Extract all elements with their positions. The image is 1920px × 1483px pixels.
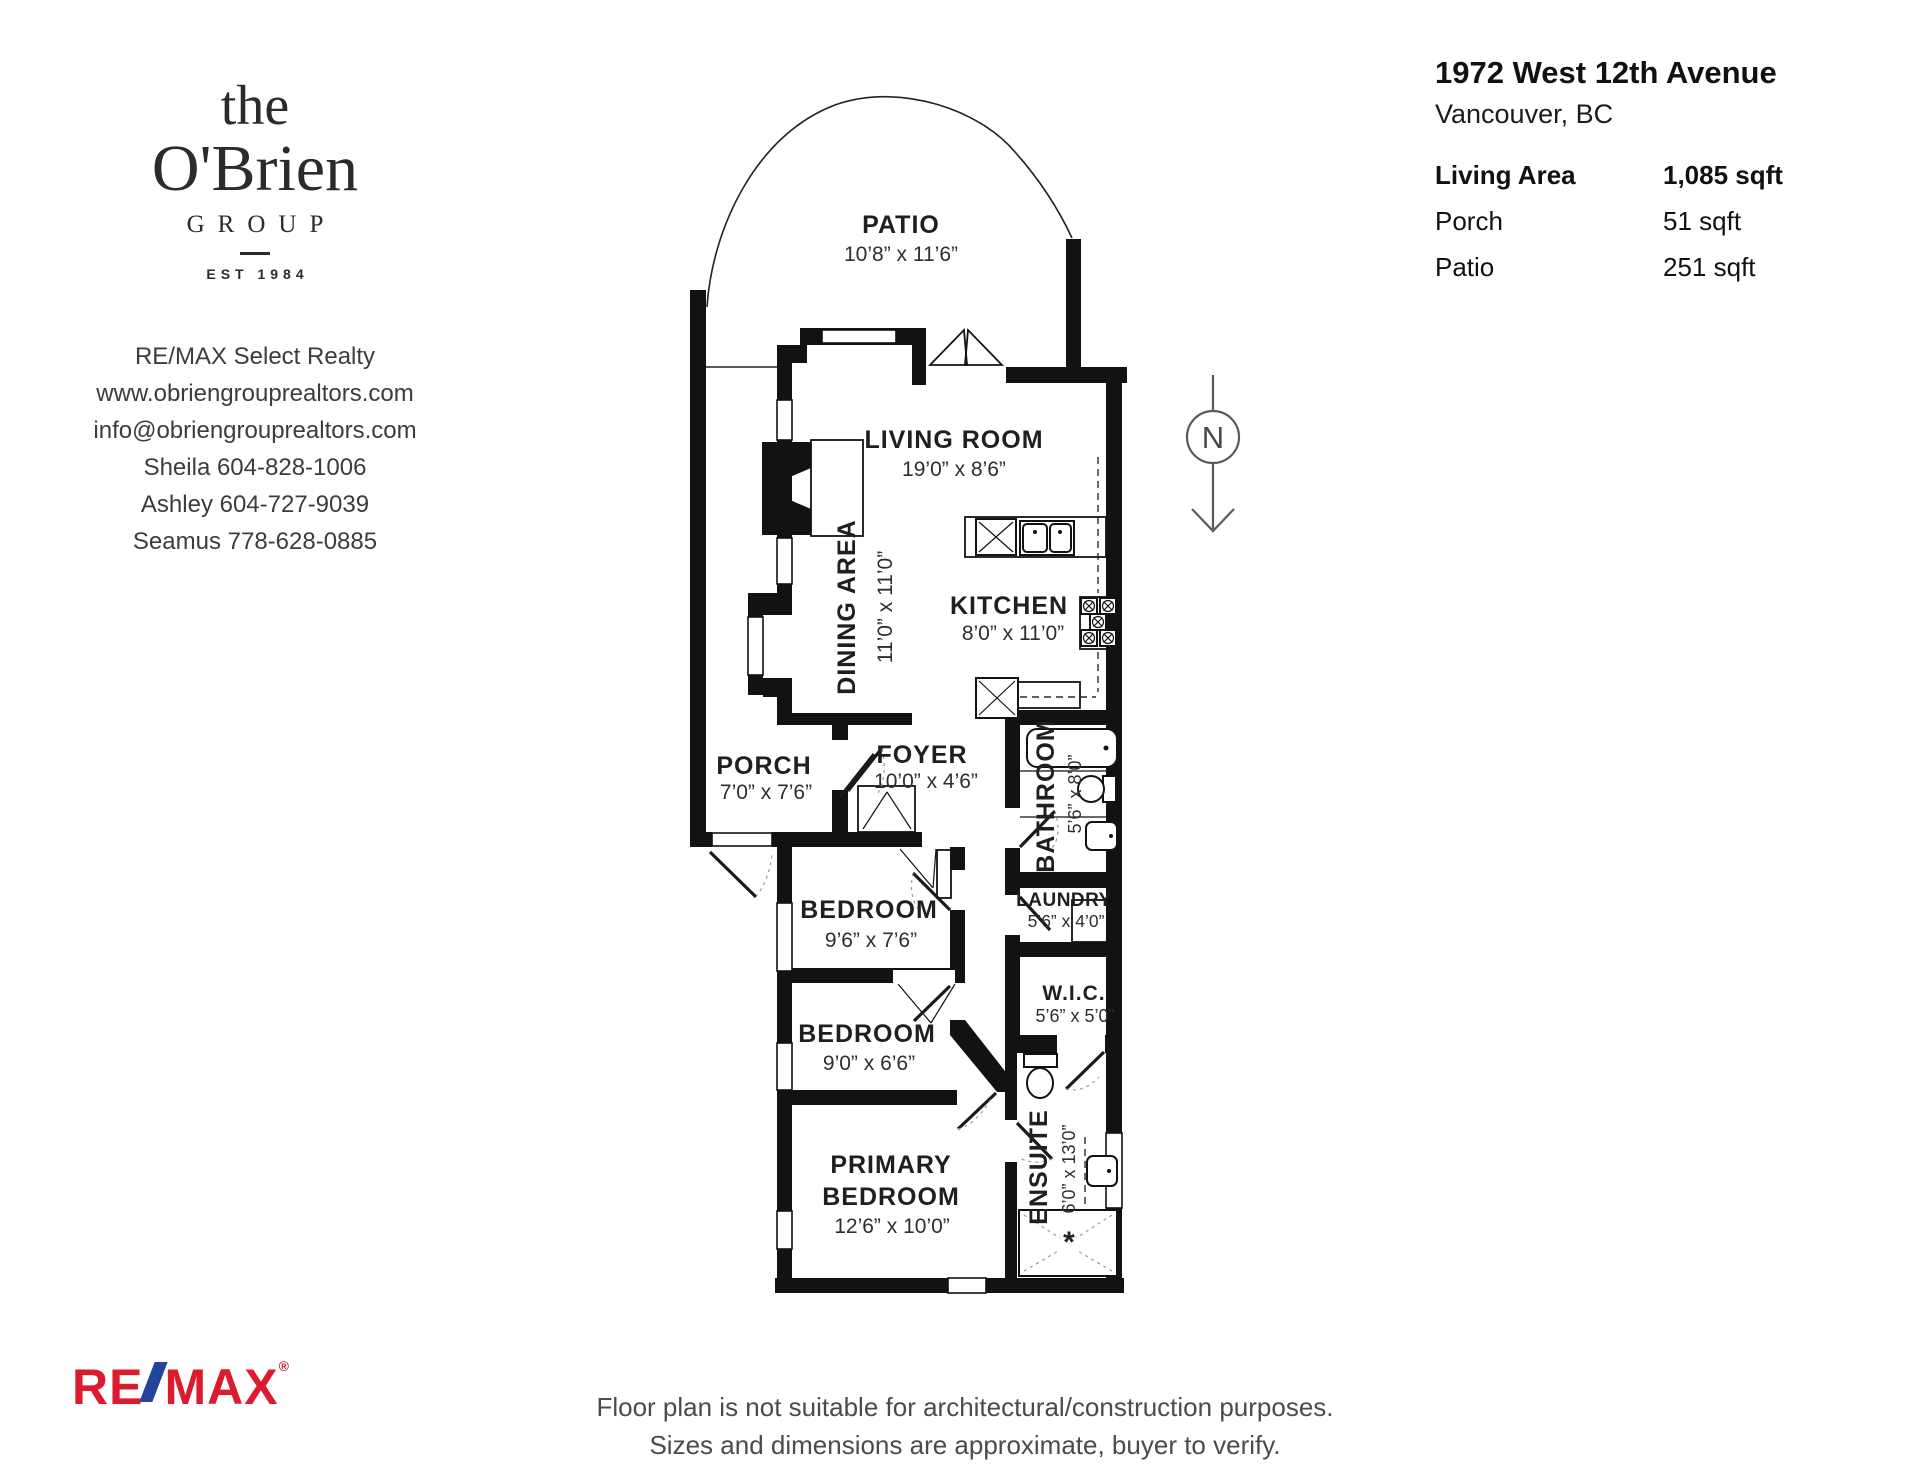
contact-agent: Seamus 778-628-0885 bbox=[40, 523, 470, 560]
window-icon bbox=[777, 1211, 792, 1249]
area-value: 251 sqft bbox=[1663, 252, 1756, 283]
svg-text:N: N bbox=[1202, 420, 1224, 455]
svg-text:BATHROOM: BATHROOM bbox=[1032, 719, 1060, 872]
svg-text:LAUNDRY: LAUNDRY bbox=[1016, 890, 1112, 911]
svg-text:5’6” x 8’0”: 5’6” x 8’0” bbox=[1065, 754, 1085, 833]
area-row: Patio 251 sqft bbox=[1435, 252, 1880, 283]
room-label-porch: PORCH 7’0” x 7’6” bbox=[716, 752, 812, 804]
contact-agent: Ashley 604-727-9039 bbox=[40, 486, 470, 523]
window-icon bbox=[948, 1278, 986, 1293]
area-table: Living Area 1,085 sqft Porch 51 sqft Pat… bbox=[1435, 160, 1880, 283]
patio-boundary-line bbox=[707, 97, 1072, 307]
room-label-primary: PRIMARY BEDROOM 12’6” x 10’0” bbox=[822, 1151, 960, 1238]
logo-the: the bbox=[60, 78, 450, 134]
svg-text:BEDROOM: BEDROOM bbox=[800, 896, 938, 924]
room-label-ensuite: ENSUITE 6’0” x 13’0” bbox=[1025, 1109, 1079, 1224]
svg-text:9’6” x 7’6”: 9’6” x 7’6” bbox=[825, 929, 917, 952]
dishwasher-icon bbox=[976, 519, 1016, 555]
svg-text:12’6” x 10’0”: 12’6” x 10’0” bbox=[834, 1215, 950, 1238]
door-threshold bbox=[712, 833, 772, 846]
north-arrow-icon: N bbox=[1187, 375, 1239, 531]
brokerage-logo: the O'Brien GROUP EST 1984 bbox=[60, 78, 450, 282]
svg-text:BEDROOM: BEDROOM bbox=[798, 1020, 936, 1048]
remax-max: MAX bbox=[164, 1358, 278, 1416]
contact-company: RE/MAX Select Realty bbox=[40, 338, 470, 375]
logo-established: EST 1984 bbox=[60, 266, 450, 282]
island-icon bbox=[976, 678, 1018, 718]
listing-address: 1972 West 12th Avenue bbox=[1435, 55, 1880, 91]
disclaimer-line: Sizes and dimensions are approximate, bu… bbox=[535, 1426, 1395, 1464]
disclaimer: Floor plan is not suitable for architect… bbox=[535, 1388, 1395, 1464]
room-label-bedroom1: BEDROOM 9’6” x 7’6” bbox=[800, 896, 938, 952]
registered-mark: ® bbox=[279, 1358, 290, 1374]
disclaimer-line: Floor plan is not suitable for architect… bbox=[535, 1388, 1395, 1426]
remax-re: RE bbox=[72, 1358, 143, 1416]
bathroom-sink-icon bbox=[1086, 822, 1117, 850]
window-icon bbox=[777, 538, 792, 584]
room-label-living: LIVING ROOM 19’0” x 8’6” bbox=[864, 426, 1043, 481]
ensuite-toilet-icon bbox=[1024, 1054, 1057, 1098]
window-icon bbox=[777, 903, 792, 971]
wic-door-icon bbox=[1066, 1052, 1104, 1089]
room-label-wic: W.I.C. 5’6” x 5’0” bbox=[1035, 982, 1114, 1026]
cabinet-dash-lines bbox=[1020, 457, 1098, 697]
room-label-patio: PATIO 10’8” x 11’6” bbox=[844, 211, 958, 266]
svg-text:11’0” x 11’0”: 11’0” x 11’0” bbox=[874, 551, 897, 663]
page-root: { "branding": { "logo": { "the": "the", … bbox=[0, 0, 1920, 1483]
svg-text:7’0” x 7’6”: 7’0” x 7’6” bbox=[720, 781, 812, 804]
contact-email: info@obriengrouprealtors.com bbox=[40, 412, 470, 449]
area-row: Living Area 1,085 sqft bbox=[1435, 160, 1880, 191]
svg-text:*: * bbox=[1063, 1226, 1075, 1259]
entry-door-icon bbox=[710, 852, 756, 897]
svg-text:PATIO: PATIO bbox=[862, 211, 940, 239]
kitchen-sink-icon bbox=[1020, 521, 1074, 555]
area-value: 1,085 sqft bbox=[1663, 160, 1783, 191]
window-icon bbox=[748, 617, 763, 675]
window-icon bbox=[822, 330, 896, 343]
contact-agent: Sheila 604-828-1006 bbox=[40, 449, 470, 486]
room-label-kitchen: KITCHEN 8’0” x 11’0” bbox=[950, 592, 1068, 645]
window-icon bbox=[777, 1043, 792, 1090]
area-label: Patio bbox=[1435, 252, 1663, 283]
svg-text:FOYER: FOYER bbox=[876, 741, 967, 769]
logo-group: GROUP bbox=[60, 211, 450, 239]
room-label-foyer: FOYER 10’0” x 4’6” bbox=[874, 741, 978, 793]
primary-door-icon bbox=[958, 1093, 996, 1129]
svg-text:W.I.C.: W.I.C. bbox=[1042, 982, 1105, 1005]
svg-text:DINING AREA: DINING AREA bbox=[833, 519, 861, 694]
area-label: Living Area bbox=[1435, 160, 1663, 191]
room-label-dining: DINING AREA 11’0” x 11’0” bbox=[833, 519, 897, 694]
bedroom1-closet-icon bbox=[900, 849, 951, 898]
contact-info: RE/MAX Select Realty www.obriengroupreal… bbox=[40, 338, 470, 560]
svg-text:ENSUITE: ENSUITE bbox=[1025, 1109, 1053, 1224]
svg-text:5’6” x 5’0”: 5’6” x 5’0” bbox=[1035, 1006, 1114, 1026]
svg-text:9’0” x 6’6”: 9’0” x 6’6” bbox=[823, 1052, 915, 1075]
svg-text:KITCHEN: KITCHEN bbox=[950, 592, 1068, 620]
contact-website: www.obriengrouprealtors.com bbox=[40, 375, 470, 412]
remax-logo: RE MAX ® bbox=[72, 1358, 290, 1416]
svg-text:6’0” x 13’0”: 6’0” x 13’0” bbox=[1059, 1124, 1079, 1213]
bedroom2-door-icon bbox=[914, 986, 950, 1021]
svg-text:10’8” x 11’6”: 10’8” x 11’6” bbox=[844, 243, 958, 266]
area-value: 51 sqft bbox=[1663, 206, 1741, 237]
logo-name: O'Brien bbox=[60, 134, 450, 203]
window-icon bbox=[777, 400, 792, 440]
svg-text:10’0” x 4’6”: 10’0” x 4’6” bbox=[874, 770, 978, 793]
svg-text:8’0” x 11’0”: 8’0” x 11’0” bbox=[962, 622, 1064, 645]
logo-divider bbox=[240, 252, 270, 255]
floorplan-svg: * PATIO 10’8” x 11’6” LIVING ROOM bbox=[560, 80, 1260, 1320]
svg-text:19’0” x 8’6”: 19’0” x 8’6” bbox=[902, 458, 1006, 481]
room-label-bedroom2: BEDROOM 9’0” x 6’6” bbox=[798, 1020, 936, 1075]
svg-text:5’6” x 4’0”: 5’6” x 4’0” bbox=[1028, 911, 1105, 931]
svg-text:BEDROOM: BEDROOM bbox=[822, 1183, 960, 1211]
listing-city: Vancouver, BC bbox=[1435, 99, 1880, 130]
area-label: Porch bbox=[1435, 206, 1663, 237]
svg-text:PORCH: PORCH bbox=[716, 752, 811, 780]
listing-header: 1972 West 12th Avenue Vancouver, BC Livi… bbox=[1435, 55, 1880, 283]
svg-text:LIVING ROOM: LIVING ROOM bbox=[864, 426, 1043, 454]
area-row: Porch 51 sqft bbox=[1435, 206, 1880, 237]
french-doors-icon bbox=[930, 330, 1002, 365]
room-label-laundry: LAUNDRY 5’6” x 4’0” bbox=[1016, 890, 1112, 931]
svg-text:PRIMARY: PRIMARY bbox=[830, 1151, 951, 1179]
